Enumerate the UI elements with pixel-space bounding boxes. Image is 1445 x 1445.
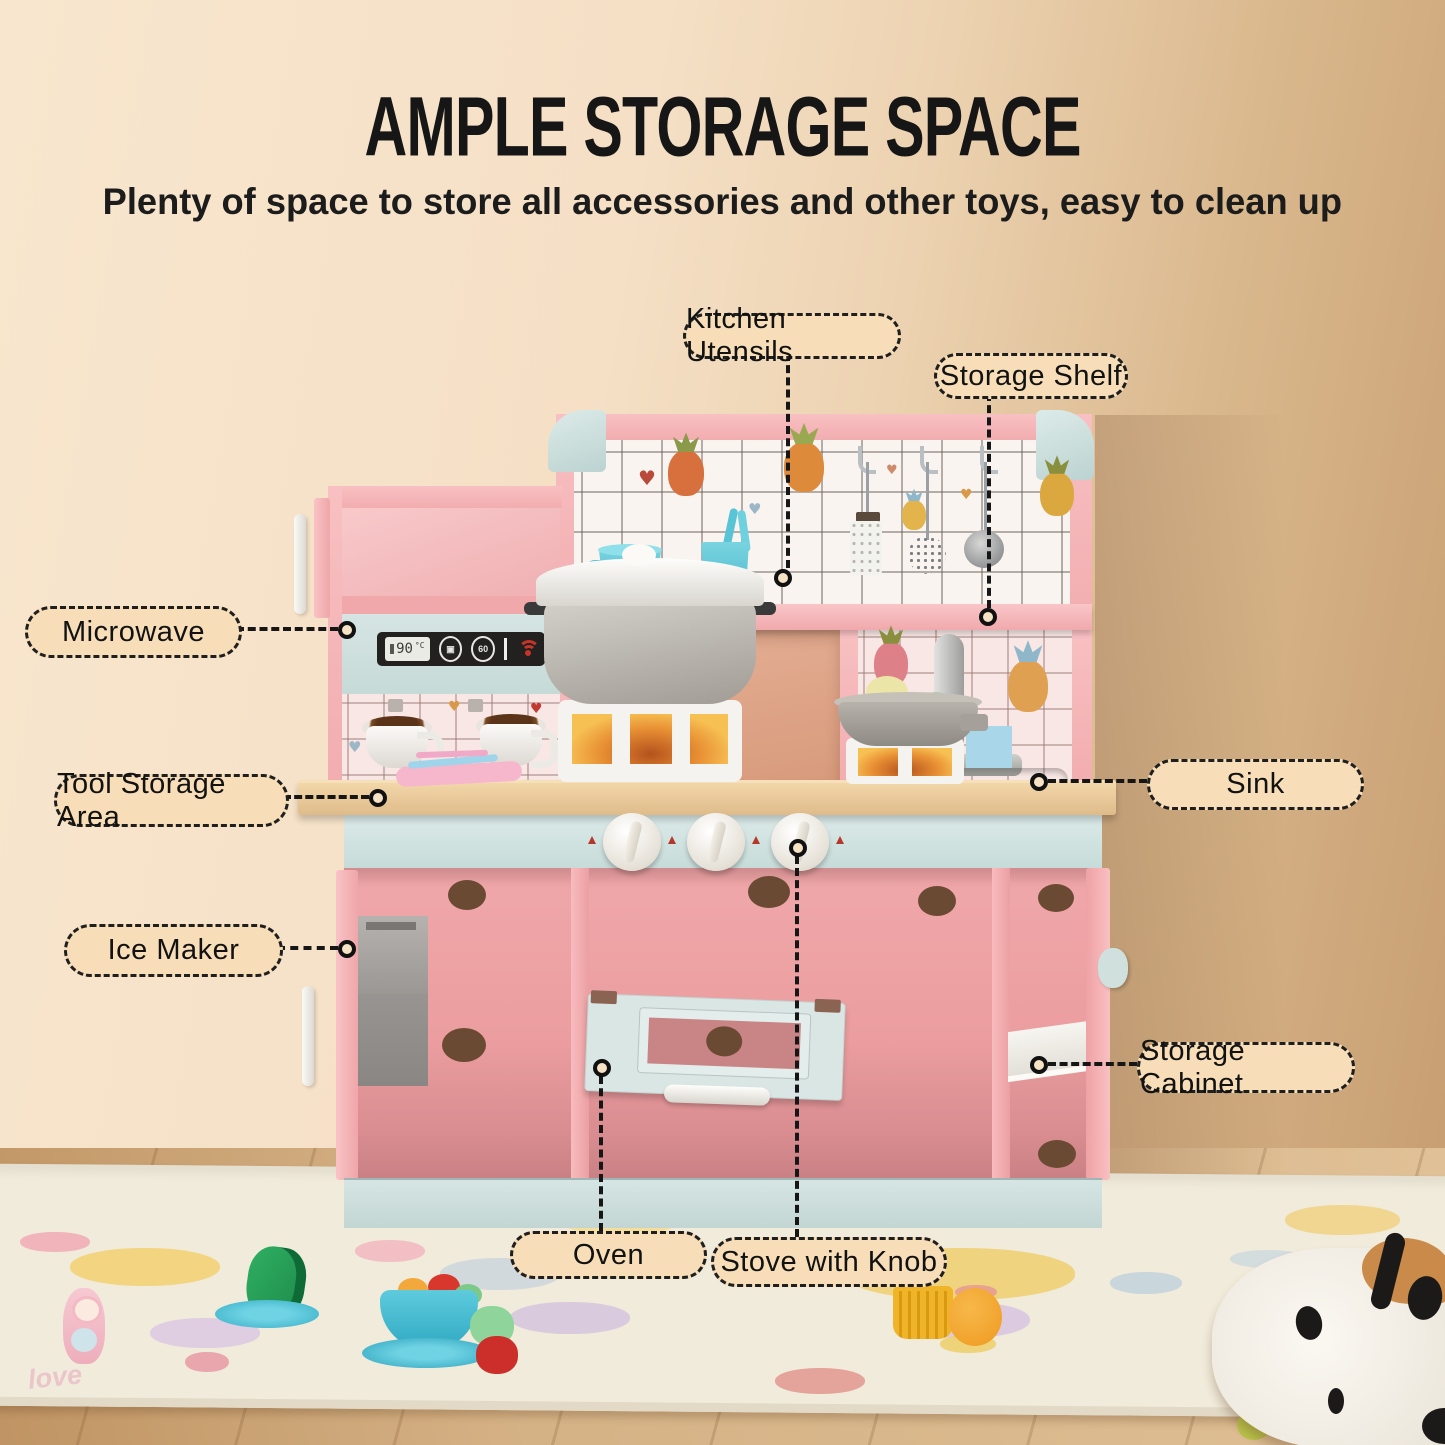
microwave-control-strip: 90 °C ▣ 60 xyxy=(377,632,545,666)
callout-endpoint xyxy=(369,789,387,807)
pot-lid xyxy=(536,558,764,606)
back-panel-hole xyxy=(748,876,790,908)
thermometer-icon xyxy=(390,644,394,654)
nesting-doll-toy xyxy=(63,1288,105,1364)
oven-window xyxy=(638,1008,810,1078)
callout-line xyxy=(795,856,799,1237)
flame-mark xyxy=(588,836,596,844)
heart-decal: ♥ xyxy=(960,488,973,502)
rug-blob xyxy=(775,1368,865,1394)
rug-blob xyxy=(70,1248,220,1286)
ladle-icon xyxy=(964,530,1004,568)
page-title-wrap: AMPLE STORAGE SPACE xyxy=(0,84,1445,169)
callout-line xyxy=(786,353,790,568)
burner-post xyxy=(672,700,690,782)
flame-mark xyxy=(836,836,844,844)
callout-line xyxy=(1048,1062,1137,1066)
plush-nostril xyxy=(1328,1388,1344,1414)
coffee-mode-icon: ▣ xyxy=(439,636,463,662)
rug-blob xyxy=(1285,1205,1400,1235)
back-panel-hole xyxy=(918,886,956,916)
cabinet-door-knob xyxy=(1098,948,1128,988)
back-panel-hole xyxy=(1038,1140,1076,1168)
rug-blob xyxy=(510,1302,630,1334)
wifi-icon xyxy=(516,638,537,660)
callout-line xyxy=(236,627,338,631)
cabinet-door-left xyxy=(336,870,358,1180)
oven-door-handle xyxy=(664,1084,771,1106)
page-title: AMPLE STORAGE SPACE xyxy=(364,78,1080,175)
callout-line xyxy=(1048,779,1147,783)
skimmer-icon xyxy=(908,536,946,574)
cabinet-door-handle xyxy=(302,986,314,1086)
pineapple-decal xyxy=(902,500,926,530)
blue-plate xyxy=(215,1300,319,1328)
callout-kitchen-utensils: Kitchen Utensils xyxy=(683,313,901,359)
burner-post xyxy=(612,700,630,782)
microwave-top-bar xyxy=(328,486,562,508)
back-panel-hole xyxy=(1038,884,1074,912)
oven-door xyxy=(584,993,846,1101)
cabinet-divider xyxy=(992,868,1010,1180)
page-subtitle-wrap: Plenty of space to store all accessories… xyxy=(0,181,1445,223)
rug-blob xyxy=(185,1352,229,1372)
heart-decal: ♥ xyxy=(530,702,543,716)
temperature-unit: °C xyxy=(415,641,425,650)
doll-face xyxy=(72,1296,102,1324)
blue-saucer xyxy=(362,1338,490,1368)
microwave-display: 90 °C xyxy=(385,637,430,661)
heart-decal: ♥ xyxy=(348,740,361,755)
stove-knob xyxy=(687,813,745,871)
callout-storage-cabinet: Storage Cabinet xyxy=(1137,1042,1355,1093)
callout-endpoint xyxy=(338,621,356,639)
plush-spot xyxy=(1422,1408,1445,1444)
cold-tap-knob xyxy=(966,726,1012,768)
doll-belly xyxy=(71,1328,97,1352)
microwave-door xyxy=(314,498,330,618)
plush-eye xyxy=(1293,1304,1326,1343)
callout-oven: Oven xyxy=(510,1231,707,1279)
flame-mark xyxy=(752,836,760,844)
rug-blob xyxy=(20,1232,90,1252)
base-plinth xyxy=(344,1178,1102,1228)
flame-mark xyxy=(668,836,676,844)
burner-flames xyxy=(572,714,728,764)
ice-maker-base xyxy=(356,994,428,1086)
heart-decal: ♥ xyxy=(886,464,898,477)
mid-right-frame xyxy=(1072,628,1092,784)
callout-endpoint xyxy=(1030,1056,1048,1074)
panel-divider xyxy=(504,638,507,660)
callout-storage-shelf: Storage Shelf xyxy=(934,353,1128,399)
callout-endpoint xyxy=(1030,773,1048,791)
skimmer-handle xyxy=(926,462,929,540)
back-panel-hole xyxy=(442,1028,486,1062)
callout-microwave: Microwave xyxy=(25,606,242,658)
toy-basket xyxy=(893,1286,953,1339)
toy-orange xyxy=(948,1288,1002,1346)
rug-blob xyxy=(355,1240,425,1262)
microwave-door-handle xyxy=(294,514,306,614)
rug-text: love xyxy=(27,1359,84,1395)
callout-line xyxy=(277,946,338,950)
callout-endpoint xyxy=(593,1059,611,1077)
callout-endpoint xyxy=(774,569,792,587)
pineapple-decal xyxy=(1040,472,1074,516)
callout-line xyxy=(599,1076,603,1231)
hutch-top-bar xyxy=(556,414,1092,440)
callout-endpoint xyxy=(338,940,356,958)
heart-decal: ♥ xyxy=(748,502,761,517)
callout-tool-storage-area: Tool Storage Area xyxy=(54,774,289,827)
pineapple-decal xyxy=(784,442,824,492)
timer-60-icon: 60 xyxy=(471,636,495,662)
grater-icon xyxy=(850,521,882,575)
rug-blob xyxy=(1110,1272,1182,1294)
callout-endpoint xyxy=(789,839,807,857)
page-subtitle: Plenty of space to store all accessories… xyxy=(103,181,1342,223)
toy-strawberry xyxy=(476,1336,518,1374)
frying-pan xyxy=(838,702,978,746)
utensil-hook xyxy=(920,446,938,474)
microwave-cavity xyxy=(342,508,560,608)
temperature-value: 90 xyxy=(396,641,413,657)
oven-window-hole xyxy=(706,1026,743,1057)
product-infographic: love ♥ ♥ ♥ ♥ xyxy=(0,0,1445,1445)
heart-decal: ♥ xyxy=(448,700,461,714)
callout-line xyxy=(283,795,369,799)
callout-endpoint xyxy=(979,608,997,626)
pot-lid-knob xyxy=(622,544,656,566)
oven-hinge xyxy=(814,999,840,1013)
pineapple-decal xyxy=(1008,660,1048,712)
heart-decal: ♥ xyxy=(638,468,656,488)
socket-decal xyxy=(388,699,403,712)
oven-hinge xyxy=(591,990,617,1004)
pineapple-decal xyxy=(668,450,704,496)
callout-sink: Sink xyxy=(1147,759,1364,810)
plush-cow-toy xyxy=(1212,1248,1445,1445)
cooking-pot xyxy=(544,598,756,704)
cabinet-door-right xyxy=(1086,868,1110,1180)
callout-stove-with-knob: Stove with Knob xyxy=(711,1237,947,1287)
callout-ice-maker: Ice Maker xyxy=(64,924,283,977)
back-panel-hole xyxy=(448,880,486,910)
callout-line xyxy=(987,393,991,608)
pan-handle xyxy=(960,714,988,731)
ice-maker-slot xyxy=(366,922,416,930)
stove-knob xyxy=(603,813,661,871)
